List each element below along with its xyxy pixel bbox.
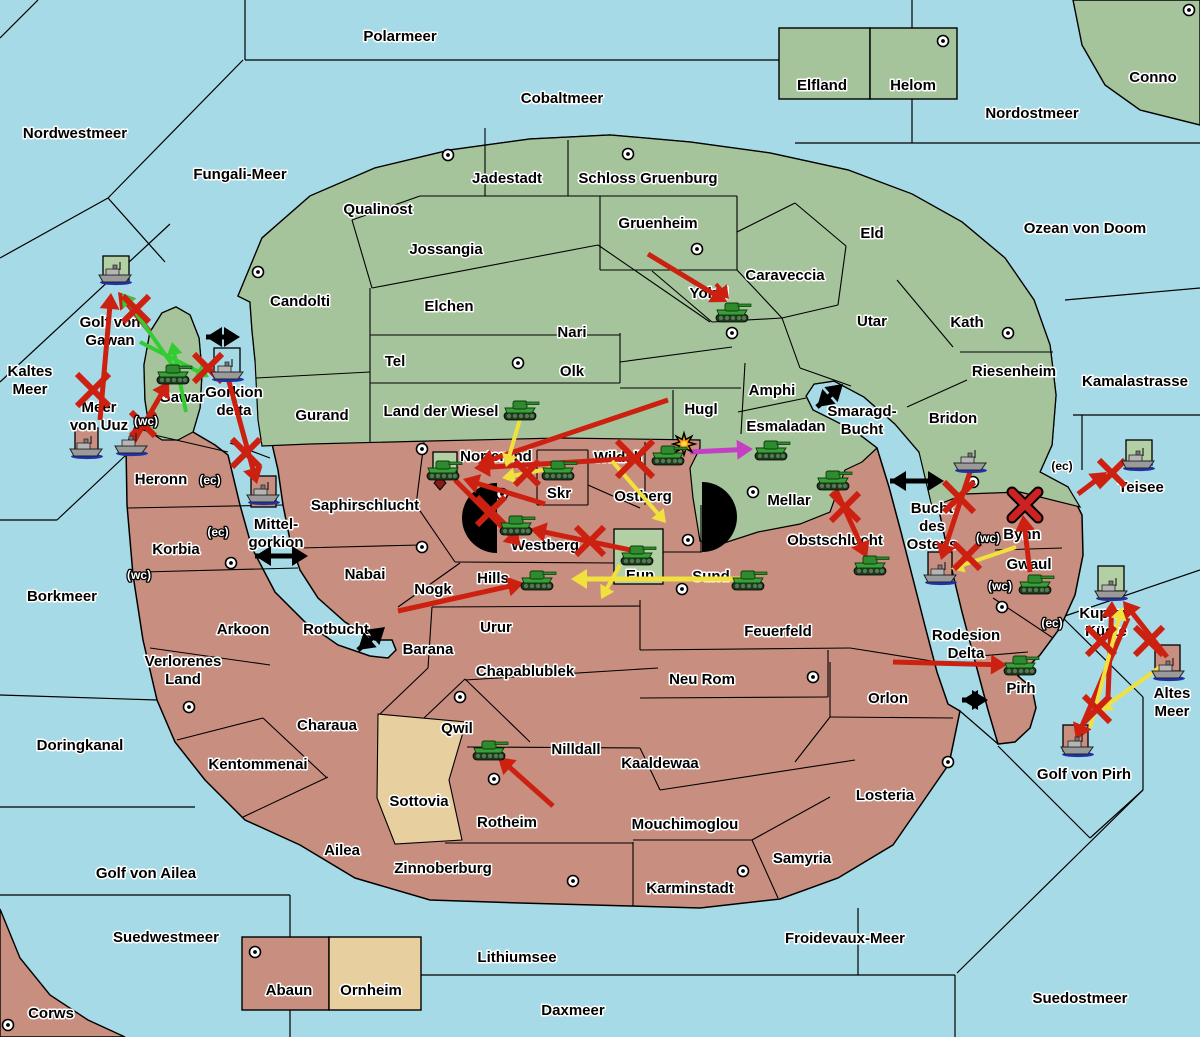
region-label: Doringkanal <box>37 737 124 754</box>
region-label: Chapablublek <box>476 663 575 680</box>
tank-turret <box>513 401 527 409</box>
region-label: Corws <box>28 1005 74 1022</box>
ship-superstructure <box>961 457 974 463</box>
region-label: Pirh <box>1006 680 1035 697</box>
supply-center-dot <box>683 535 694 546</box>
tank-wheel <box>667 459 671 463</box>
region-label: Arkoon <box>217 621 270 638</box>
tank-turret <box>863 556 877 564</box>
supply-center-core <box>187 705 191 709</box>
supply-center-core <box>6 1023 10 1027</box>
supply-center-dot <box>3 1020 14 1031</box>
tank-wheel <box>661 459 665 463</box>
region-label: Charaua <box>297 717 358 734</box>
supply-center-dot <box>253 267 264 278</box>
region-label: Bridon <box>929 410 977 427</box>
supply-center-dot <box>1184 5 1195 16</box>
ship-hull <box>70 449 102 456</box>
tank-wheel <box>160 378 164 382</box>
supply-center-core <box>516 361 520 365</box>
region-label: Rotheim <box>477 814 537 831</box>
supply-center-core <box>1000 605 1004 609</box>
region-label: Amphi <box>749 382 796 399</box>
region-label: Lithiumsee <box>477 949 556 966</box>
region-label: Mouchimoglou <box>632 816 739 833</box>
tank-turret <box>1028 575 1042 583</box>
supply-center-core <box>741 869 745 873</box>
tank-turret <box>725 303 739 311</box>
coast-label: (ec) <box>199 473 220 487</box>
tank-wheel <box>488 754 492 758</box>
tank-wheel <box>476 754 480 758</box>
tank-wheel <box>521 529 525 533</box>
supply-center-dot <box>226 558 237 569</box>
tank-barrel <box>754 572 767 575</box>
region-label: Utar <box>857 313 887 330</box>
ship-funnel <box>938 565 942 569</box>
tank-wheel <box>838 484 842 488</box>
tank-wheel <box>1019 669 1023 673</box>
region-label: Esmaladan <box>746 418 825 435</box>
ship-hull <box>924 575 956 582</box>
tank-wheel <box>524 584 528 588</box>
tank-wheel <box>525 414 529 418</box>
region-label: Polarmeer <box>363 28 437 45</box>
region-label: Olk <box>560 363 585 380</box>
tank-wheel <box>183 378 187 382</box>
tank-wheel <box>753 584 757 588</box>
region-label: Daxmeer <box>541 1002 605 1019</box>
tank-wheel <box>568 474 572 478</box>
tank-turret <box>436 461 450 469</box>
tank-wheel <box>1028 588 1032 592</box>
tank-turret <box>826 471 840 479</box>
supply-center-core <box>446 153 450 157</box>
tank-wheel <box>172 378 176 382</box>
region-label: Karminstadt <box>646 880 734 897</box>
region-label: Golf von Pirh <box>1037 766 1131 783</box>
tank-turret <box>530 571 544 579</box>
region-label: Mittel-gorkion <box>249 516 304 551</box>
tank-wheel <box>507 414 511 418</box>
region-label: Golf von Ailea <box>96 865 197 882</box>
region-label: Kentommenai <box>208 756 307 773</box>
tank-wheel <box>1007 669 1011 673</box>
region-label: Rotbucht <box>303 621 369 638</box>
ship-funnel <box>84 439 88 443</box>
tank-turret <box>741 571 755 579</box>
tank-wheel <box>863 569 867 573</box>
region-label: Candolti <box>270 293 330 310</box>
tank-wheel <box>647 559 651 563</box>
tank-wheel <box>742 316 746 320</box>
region-label: Ailea <box>324 842 361 859</box>
region-label: Fungali-Meer <box>193 166 287 183</box>
tank-wheel <box>630 559 634 563</box>
coast-label: (ec) <box>207 525 228 539</box>
tank-turret <box>630 546 644 554</box>
tank-barrel <box>564 462 577 465</box>
ship-superstructure <box>1159 665 1172 671</box>
tank-wheel <box>781 454 785 458</box>
tank-wheel <box>843 484 847 488</box>
tank-turret <box>482 741 496 749</box>
region-label: AltesMeer <box>1154 685 1191 720</box>
tank-barrel <box>777 442 790 445</box>
region-label: Conno <box>1129 69 1176 86</box>
region-label: Kaaldewaa <box>621 755 699 772</box>
supply-center-dot <box>417 542 428 553</box>
region-label: Gurand <box>295 407 348 424</box>
ship-superstructure <box>254 489 267 495</box>
tank-barrel <box>543 572 556 575</box>
coast-label: (wc) <box>976 531 1000 545</box>
region-label: Nari <box>557 324 586 341</box>
tank-barrel <box>526 402 539 405</box>
region-label: Nordostmeer <box>985 105 1079 122</box>
tank-wheel <box>741 584 745 588</box>
supply-center-core <box>730 331 734 335</box>
tank-barrel <box>495 742 508 745</box>
supply-center-core <box>695 247 699 251</box>
tank-wheel <box>678 459 682 463</box>
tank-turret <box>509 516 523 524</box>
tank-barrel <box>643 547 656 550</box>
ship-hull <box>1152 671 1184 678</box>
tank-wheel <box>758 454 762 458</box>
tank-wheel <box>1040 588 1044 592</box>
region-label: Riesenheim <box>972 363 1056 380</box>
ship-hull <box>1061 747 1093 754</box>
ship-hull <box>954 463 986 470</box>
tank-wheel <box>453 474 457 478</box>
tank-wheel <box>545 474 549 478</box>
tank-wheel <box>430 474 434 478</box>
tank-wheel <box>776 454 780 458</box>
tank-barrel <box>1041 576 1054 579</box>
tank-wheel <box>530 584 534 588</box>
supply-center-core <box>811 675 815 679</box>
tank-wheel <box>1013 669 1017 673</box>
tank-wheel <box>731 316 735 320</box>
supply-center-dot <box>184 702 195 713</box>
ship-funnel <box>1166 661 1170 665</box>
region-label: Ornheim <box>340 982 402 999</box>
tank-wheel <box>642 559 646 563</box>
supply-center-dot <box>938 36 949 47</box>
supply-center-dot <box>677 584 688 595</box>
tank-barrel <box>674 447 687 450</box>
supply-center-dot <box>417 444 428 455</box>
tank-wheel <box>869 569 873 573</box>
region-label: Orlon <box>868 690 908 707</box>
tank-turret <box>166 365 180 373</box>
tank-wheel <box>636 559 640 563</box>
region-label: Borkmeer <box>27 588 97 605</box>
ship-superstructure <box>1102 585 1115 591</box>
tank-barrel <box>1026 657 1039 660</box>
ship-superstructure <box>931 569 944 575</box>
tank-wheel <box>764 454 768 458</box>
region-label: Neu Rom <box>669 671 735 688</box>
supply-center-core <box>420 545 424 549</box>
tank-turret <box>551 461 565 469</box>
tank-wheel <box>880 569 884 573</box>
coast-label: (wc) <box>127 568 151 582</box>
supply-center-core <box>686 538 690 542</box>
ship-superstructure <box>1068 741 1081 747</box>
coast-label: (ec) <box>1041 616 1062 630</box>
tank-wheel <box>166 378 170 382</box>
region-label: Jadestadt <box>472 170 542 187</box>
supply-center-dot <box>997 602 1008 613</box>
supply-center-core <box>1006 331 1010 335</box>
supply-center-core <box>751 490 755 494</box>
region-label: Saphirschlucht <box>311 497 419 514</box>
region-label: Kath <box>950 314 983 331</box>
supply-center-dot <box>513 358 524 369</box>
tank-wheel <box>557 474 561 478</box>
tank-wheel <box>530 414 534 418</box>
supply-center-core <box>253 950 257 954</box>
tank-wheel <box>499 754 503 758</box>
region-label: Sottovia <box>389 793 449 810</box>
ship-hull <box>247 495 279 502</box>
region-label: Hills <box>477 570 509 587</box>
region-label: Nilldall <box>551 741 600 758</box>
region-label: Suedostmeer <box>1032 990 1127 1007</box>
region-label: Qualinost <box>343 201 412 218</box>
region-label: Mellar <box>767 492 811 509</box>
supply-center-core <box>229 561 233 565</box>
region-label: Heronn <box>135 471 188 488</box>
supply-center-dot <box>808 672 819 683</box>
supply-center-dot <box>943 757 954 768</box>
ship-funnel <box>1109 581 1113 585</box>
region-label: Schloss Gruenburg <box>578 170 717 187</box>
tank-wheel <box>725 316 729 320</box>
region-label: Urur <box>480 619 512 636</box>
supply-center-dot <box>738 866 749 877</box>
tank-wheel <box>747 584 751 588</box>
tank-wheel <box>1030 669 1034 673</box>
region-label: Helom <box>890 77 936 94</box>
region-label: Tel <box>385 353 406 370</box>
tank-wheel <box>1025 669 1029 673</box>
tank-turret <box>1013 656 1027 664</box>
supply-center-core <box>458 695 462 699</box>
region-label: Ozean von Doom <box>1024 220 1147 237</box>
supply-center-dot <box>568 876 579 887</box>
ship-hull <box>1095 591 1127 598</box>
tank-wheel <box>735 584 739 588</box>
tank-wheel <box>832 484 836 488</box>
region-label: Skr <box>547 485 571 502</box>
tank-wheel <box>536 584 540 588</box>
coast-label: (wc) <box>134 414 158 428</box>
ship-hull <box>99 275 131 282</box>
tank-wheel <box>1022 588 1026 592</box>
tank-barrel <box>876 557 889 560</box>
tank-wheel <box>826 484 830 488</box>
tank-wheel <box>875 569 879 573</box>
tank-wheel <box>563 474 567 478</box>
supply-center-core <box>256 270 260 274</box>
tank-wheel <box>551 474 555 478</box>
ship-superstructure <box>218 366 231 372</box>
region-label: Feuerfeld <box>744 623 812 640</box>
tank-wheel <box>547 584 551 588</box>
supply-center-core <box>571 879 575 883</box>
tank-wheel <box>509 529 513 533</box>
tank-wheel <box>515 529 519 533</box>
coast-label: (ec) <box>1051 459 1072 473</box>
supply-center-core <box>1187 8 1191 12</box>
tank-wheel <box>857 569 861 573</box>
tank-turret <box>764 441 778 449</box>
region-label: Korbia <box>152 541 200 558</box>
tank-barrel <box>179 366 192 369</box>
supply-center-dot <box>489 774 500 785</box>
tank-barrel <box>738 304 751 307</box>
arrow-shaft <box>893 662 1002 665</box>
supply-center-dot <box>455 692 466 703</box>
tank-barrel <box>449 462 462 465</box>
region-label: KaltesMeer <box>7 363 52 398</box>
island-box-ornheim <box>329 937 421 1010</box>
ship-funnel <box>261 485 265 489</box>
ship-funnel <box>1075 737 1079 741</box>
region-label: Suedwestmeer <box>113 929 219 946</box>
region-label: Kamalastrasse <box>1082 373 1188 390</box>
tank-wheel <box>673 459 677 463</box>
tank-wheel <box>482 754 486 758</box>
tank-wheel <box>513 414 517 418</box>
tank-wheel <box>820 484 824 488</box>
tank-wheel <box>442 474 446 478</box>
supply-center-core <box>680 587 684 591</box>
supply-center-dot <box>250 947 261 958</box>
supply-center-dot <box>623 149 634 160</box>
tank-wheel <box>770 454 774 458</box>
region-label: Cobaltmeer <box>521 90 604 107</box>
ship-funnel <box>1136 451 1140 455</box>
tank-wheel <box>448 474 452 478</box>
tank-wheel <box>503 529 507 533</box>
tank-barrel <box>522 517 535 520</box>
region-label: Elchen <box>424 298 473 315</box>
region-label: Elfland <box>797 77 847 94</box>
supply-center-dot <box>748 487 759 498</box>
region-label: Eld <box>860 225 883 242</box>
region-label: Abaun <box>266 982 313 999</box>
tank-wheel <box>758 584 762 588</box>
tank-wheel <box>494 754 498 758</box>
supply-center-dot <box>692 244 703 255</box>
region-label: Samyria <box>773 850 832 867</box>
tank-wheel <box>737 316 741 320</box>
coast-label: (wc) <box>988 579 1012 593</box>
region-label: Hugl <box>684 401 717 418</box>
supply-center-dot <box>443 150 454 161</box>
tank-wheel <box>1034 588 1038 592</box>
ship-funnel <box>113 265 117 269</box>
ship-superstructure <box>1129 455 1142 461</box>
region-label: Zinnoberburg <box>394 860 492 877</box>
region-label: Losteria <box>856 787 915 804</box>
tank-wheel <box>542 584 546 588</box>
supply-center-core <box>626 152 630 156</box>
supply-center-dot <box>1003 328 1014 339</box>
ship-superstructure <box>122 440 135 446</box>
region-label: Caraveccia <box>745 267 825 284</box>
explosion-core <box>681 441 687 447</box>
region-label: Froidevaux-Meer <box>785 930 905 947</box>
region-label: Gruenheim <box>618 215 697 232</box>
ship-funnel <box>968 453 972 457</box>
region-label: Nabai <box>345 566 386 583</box>
region-label: Land der Wiesel <box>384 403 499 420</box>
supply-center-core <box>420 447 424 451</box>
tank-wheel <box>719 316 723 320</box>
region-label: Nordwestmeer <box>23 125 127 142</box>
tank-barrel <box>839 472 852 475</box>
region-label: Qwil <box>441 720 473 737</box>
ship-hull <box>211 372 243 379</box>
tank-wheel <box>436 474 440 478</box>
ship-hull <box>115 446 147 453</box>
supply-center-core <box>946 760 950 764</box>
tank-wheel <box>526 529 530 533</box>
supply-center-core <box>492 777 496 781</box>
supply-center-dot <box>727 328 738 339</box>
tank-wheel <box>1045 588 1049 592</box>
tank-wheel <box>624 559 628 563</box>
ship-superstructure <box>106 269 119 275</box>
region-label: Teisee <box>1118 479 1164 496</box>
tank-wheel <box>519 414 523 418</box>
tank-turret <box>661 446 675 454</box>
region-label: Jossangia <box>409 241 483 258</box>
map-stage: PolarmeerNordwestmeerFungali-MeerCobaltm… <box>0 0 1200 1037</box>
region-label: Nogk <box>414 581 452 598</box>
ship-funnel <box>225 362 229 366</box>
tank-wheel <box>655 459 659 463</box>
region-label: Barana <box>403 641 455 658</box>
ship-funnel <box>129 436 133 440</box>
tank-wheel <box>178 378 182 382</box>
supply-center-core <box>941 39 945 43</box>
game-map[interactable]: PolarmeerNordwestmeerFungali-MeerCobaltm… <box>0 0 1200 1037</box>
ship-hull <box>1122 461 1154 468</box>
ship-superstructure <box>77 443 90 449</box>
